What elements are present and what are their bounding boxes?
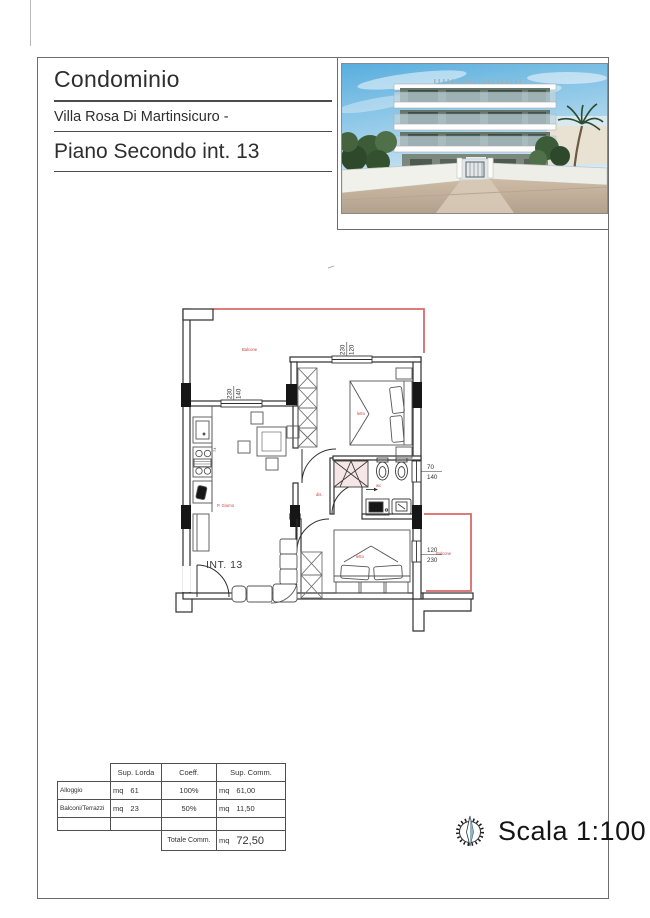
unit-mq: mq (113, 804, 123, 813)
unit-number-label: INT. 13 (206, 559, 243, 571)
alloggio-lorda: 61 (130, 786, 138, 795)
bathroom-label: wc (376, 483, 381, 488)
dim-bath-window: 70 140 (421, 464, 442, 481)
balcony-top-label: Balcone (242, 347, 258, 352)
dim-bed1-window: 230 120 (340, 342, 356, 356)
unit-mq: mq (219, 836, 229, 845)
unit-mq: mq (219, 786, 229, 795)
svg-text:74: 74 (212, 447, 217, 452)
bathroom-fixtures (334, 458, 411, 515)
kitchen-note: 74 (212, 447, 217, 452)
balconi-lorda: 23 (130, 804, 138, 813)
living-label: P. Giorno (217, 503, 235, 508)
scan-smudge (328, 266, 334, 268)
scale-text: Scala 1:100 (498, 816, 646, 847)
unit-mq: mq (219, 804, 229, 813)
col-header-coeff: Coeff. (162, 764, 217, 782)
dining-table (238, 412, 299, 470)
table-row-empty (58, 818, 286, 831)
hall-label: dis. (316, 492, 323, 497)
svg-text:120: 120 (349, 344, 356, 355)
bedroom1-label: letto (357, 411, 366, 416)
kitchen (193, 406, 212, 551)
bedroom2-label: letto (356, 554, 365, 559)
scale-indicator: Scala 1:100 (452, 812, 646, 850)
svg-text:70: 70 (427, 464, 434, 471)
alloggio-comm: 61,00 (236, 786, 255, 795)
bed2 (334, 530, 410, 593)
svg-text:230: 230 (340, 344, 347, 355)
svg-text:230: 230 (427, 557, 438, 564)
col-header-sup-lorda: Sup. Lorda (111, 764, 162, 782)
table-row: Alloggio mq61 100% mq61,00 (58, 782, 286, 800)
dim-kitchen-window: 230 140 (227, 386, 243, 400)
balconi-coeff: 50% (162, 800, 217, 818)
col-header-sup-comm: Sup. Comm. (217, 764, 286, 782)
svg-text:120: 120 (427, 547, 438, 554)
scanned-floorplan-page: Condominio Villa Rosa Di Martinsicuro - … (0, 0, 650, 918)
compass-rose-icon (452, 812, 488, 850)
area-summary-table: Sup. Lorda Coeff. Sup. Comm. Alloggio mq… (57, 763, 286, 851)
balconi-comm: 11,50 (236, 804, 254, 813)
table-row: Balconi/Terrazzi mq23 50% mq11,50 (58, 800, 286, 818)
sofa (232, 539, 297, 603)
total-value: 72,50 (236, 835, 264, 847)
balcony-right-label: Balcone (436, 551, 452, 556)
svg-text:230: 230 (227, 388, 234, 399)
table-row-total: Totale Comm. mq72,50 (58, 831, 286, 851)
unit-mq: mq (113, 786, 123, 795)
row-label-alloggio: Alloggio (58, 782, 111, 800)
total-label: Totale Comm. (162, 831, 217, 851)
svg-text:140: 140 (236, 388, 243, 399)
row-label-balconi: Balconi/Terrazzi (58, 800, 111, 818)
svg-text:140: 140 (427, 474, 438, 481)
alloggio-coeff: 100% (162, 782, 217, 800)
